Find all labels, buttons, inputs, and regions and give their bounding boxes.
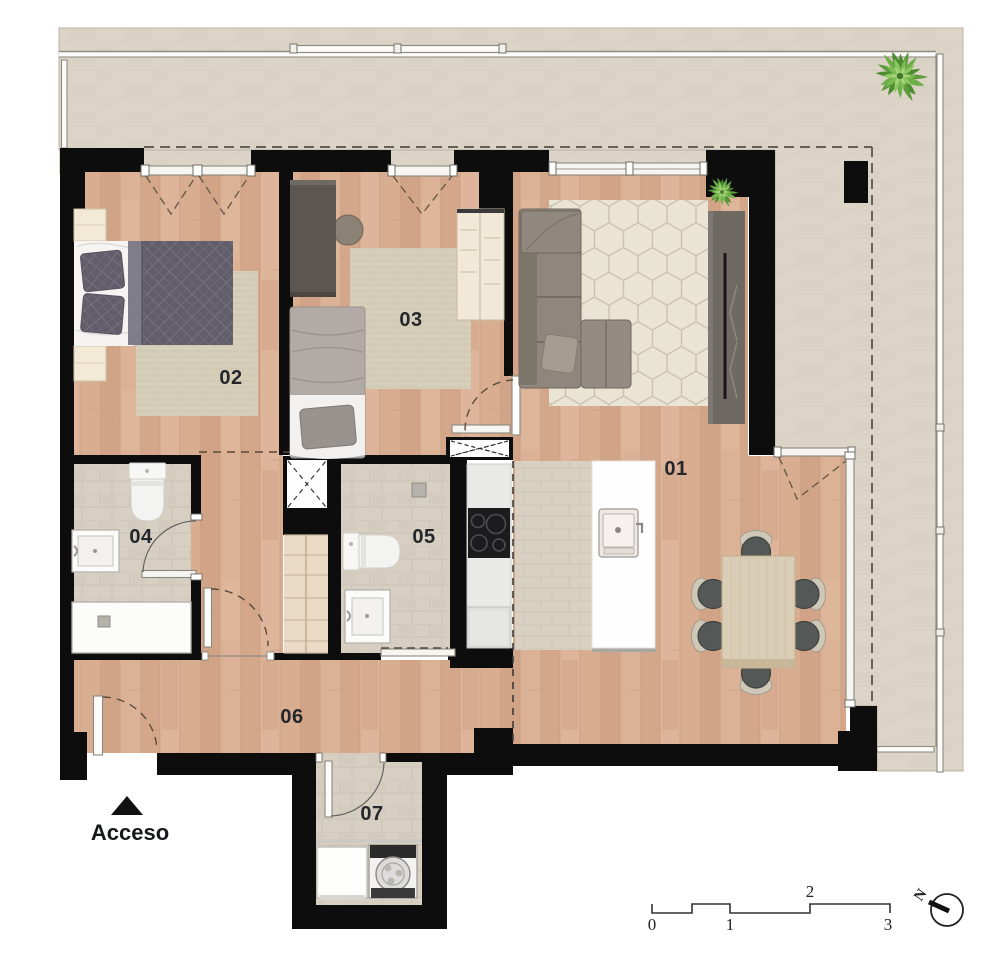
svg-text:07: 07: [360, 803, 383, 825]
svg-text:02: 02: [219, 367, 242, 389]
svg-text:06: 06: [280, 706, 303, 728]
svg-text:04: 04: [129, 526, 153, 548]
svg-text:2: 2: [806, 882, 815, 901]
svg-text:1: 1: [726, 915, 735, 934]
svg-text:3: 3: [884, 915, 893, 934]
svg-text:Acceso: Acceso: [91, 820, 169, 845]
svg-text:05: 05: [412, 526, 435, 548]
svg-text:0: 0: [648, 915, 657, 934]
svg-text:03: 03: [399, 309, 422, 331]
svg-text:N: N: [911, 886, 930, 904]
svg-text:01: 01: [664, 458, 687, 480]
